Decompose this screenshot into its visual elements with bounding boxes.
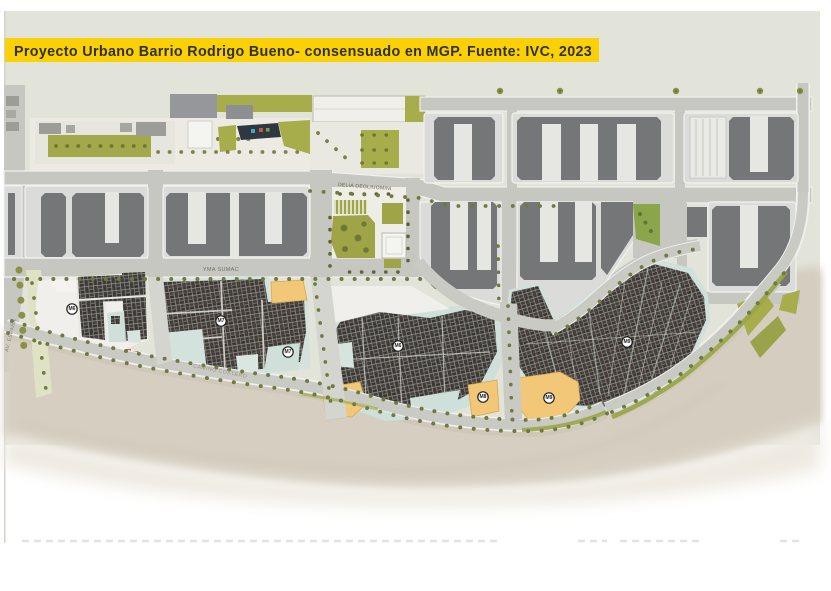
svg-text:M7: M7 [218, 318, 225, 324]
svg-text:Proyecto Urbano Barrio Rodrigo: Proyecto Urbano Barrio Rodrigo Bueno- co… [14, 44, 592, 60]
svg-text:M9: M9 [624, 339, 631, 345]
svg-text:M8: M8 [480, 394, 487, 400]
svg-text:M6: M6 [395, 343, 402, 349]
svg-text:M9: M9 [546, 395, 553, 401]
svg-text:M7: M7 [285, 349, 292, 355]
svg-text:YMA SUMAC: YMA SUMAC [203, 267, 239, 273]
svg-text:M6: M6 [69, 306, 76, 312]
